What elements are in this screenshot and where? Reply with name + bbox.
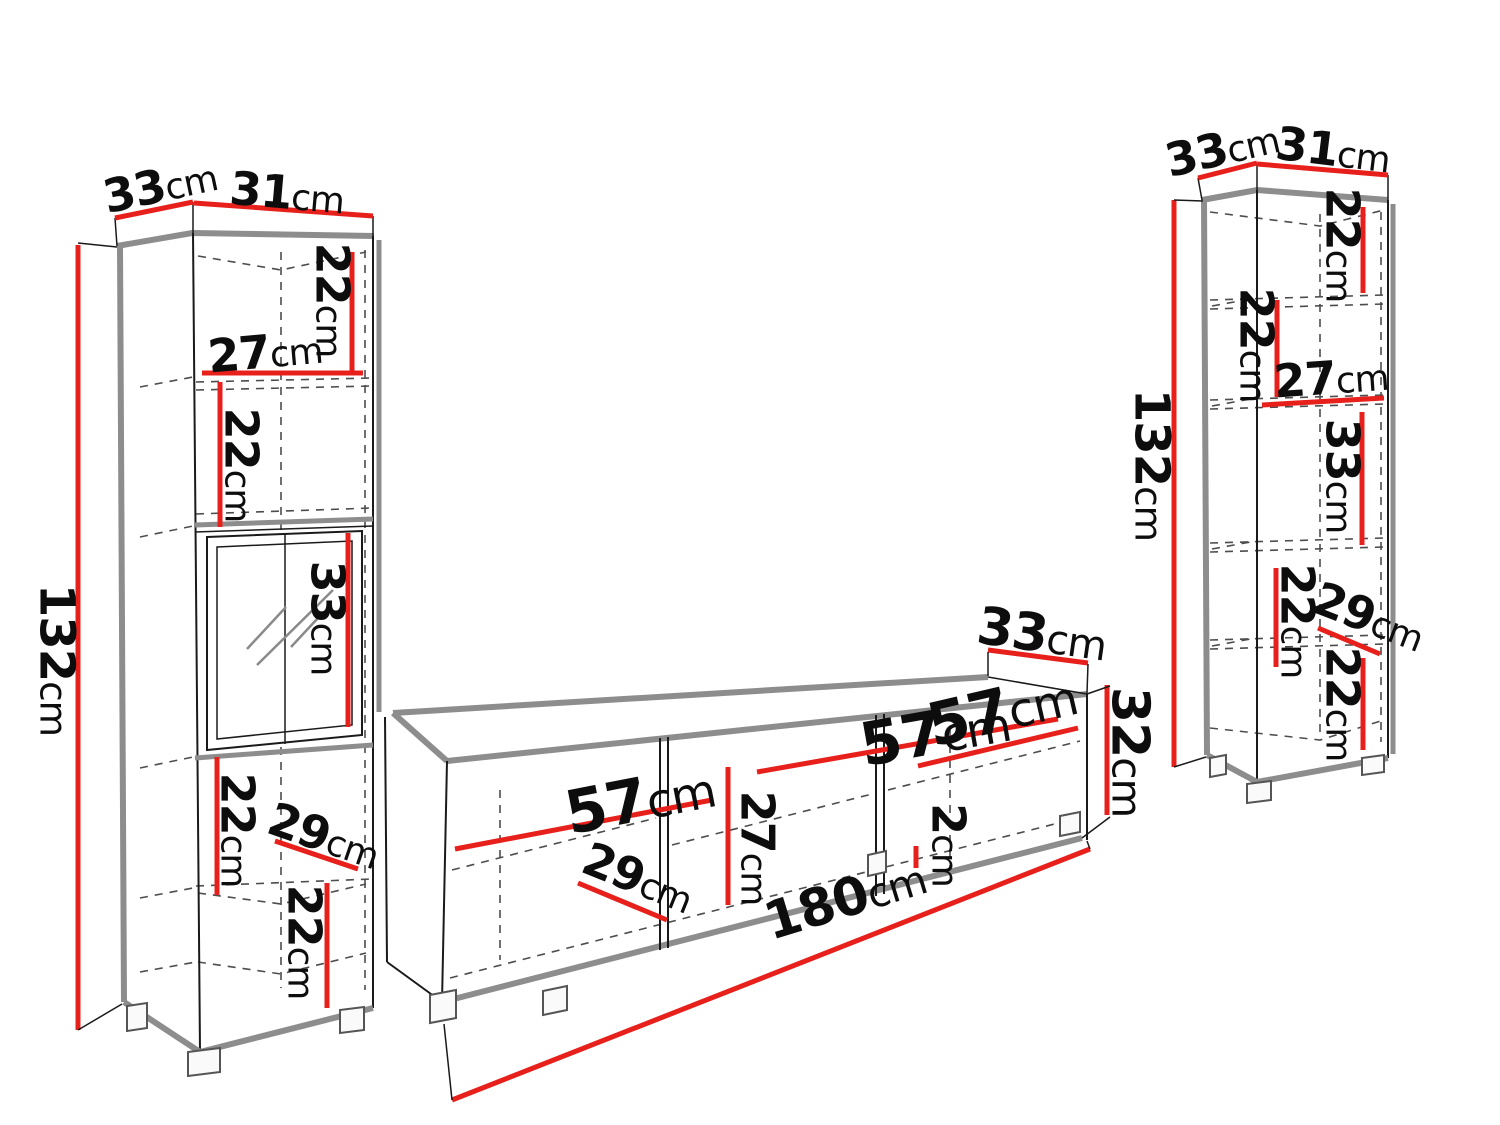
tv-stand-height-label: 32cm — [1099, 687, 1159, 817]
tv-stand-drawing: 33cm 57cm 57cm 57cm 27cm 29cm 2cm 32cm 1… — [385, 596, 1159, 1100]
tv-stand-depth-label: 33cm — [973, 596, 1110, 674]
left-cabinet-width-label: 31cm — [228, 161, 347, 225]
left-cabinet-height-label: 132cm — [29, 584, 85, 736]
furniture-dimensions-diagram: 33cm 31cm 132cm 22cm 27cm 22cm 33cm 22cm… — [0, 0, 1500, 1125]
right-cabinet-height-label: 132cm — [1124, 389, 1180, 541]
left-cabinet-drawing: 33cm 31cm 132cm 22cm 27cm 22cm 33cm 22cm… — [29, 147, 387, 1076]
diagram-canvas: 33cm 31cm 132cm 22cm 27cm 22cm 33cm 22cm… — [0, 0, 1500, 1125]
right-cabinet-drawing: 33cm 31cm 132cm 22cm 22cm 27cm 33cm 22cm… — [1124, 109, 1433, 803]
